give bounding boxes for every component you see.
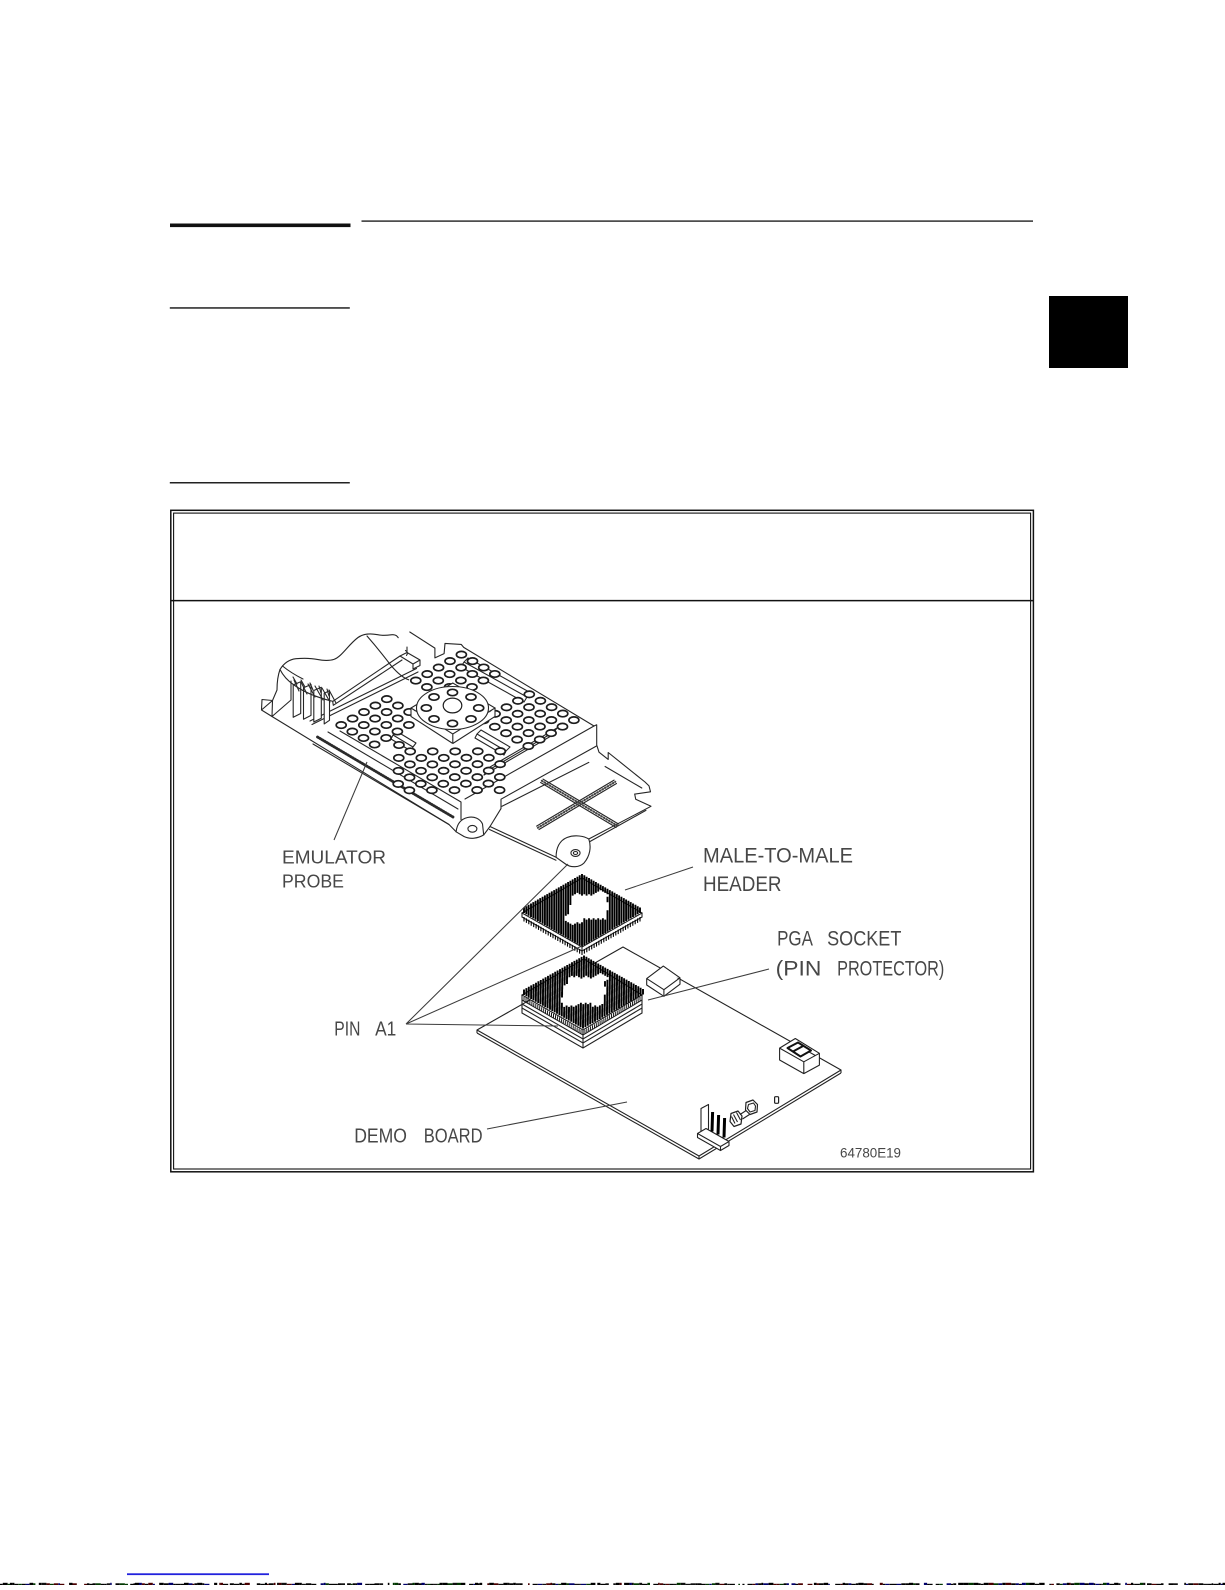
svg-text:A1: A1 <box>375 1019 396 1041</box>
svg-text:SOCKET: SOCKET <box>827 927 901 951</box>
svg-text:PROTECTOR): PROTECTOR) <box>837 957 944 981</box>
svg-text:DEMO: DEMO <box>354 1125 407 1148</box>
svg-text:PIN: PIN <box>334 1019 360 1041</box>
svg-text:HEADER: HEADER <box>703 872 782 896</box>
svg-text:(PIN: (PIN <box>776 957 822 981</box>
svg-text:EMULATOR: EMULATOR <box>282 847 386 868</box>
svg-text:PGA: PGA <box>777 927 813 951</box>
svg-text:MALE-TO-MALE: MALE-TO-MALE <box>703 844 853 868</box>
svg-text:BOARD: BOARD <box>424 1125 483 1148</box>
svg-text:64780E19: 64780E19 <box>840 1145 901 1161</box>
svg-text:PROBE: PROBE <box>282 871 344 892</box>
